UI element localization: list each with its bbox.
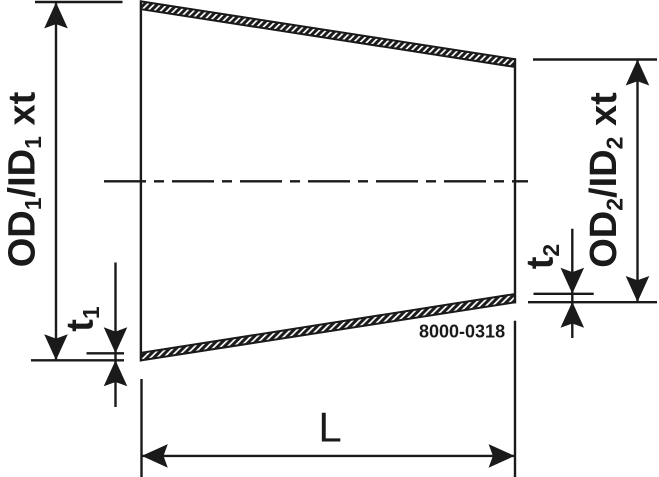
svg-text:8000-0318: 8000-0318	[419, 321, 505, 341]
svg-text:OD1/ID1 xt: OD1/ID1 xt	[2, 91, 47, 267]
svg-text:L: L	[318, 403, 341, 450]
svg-text:OD2/ID2 xt: OD2/ID2 xt	[583, 92, 628, 268]
